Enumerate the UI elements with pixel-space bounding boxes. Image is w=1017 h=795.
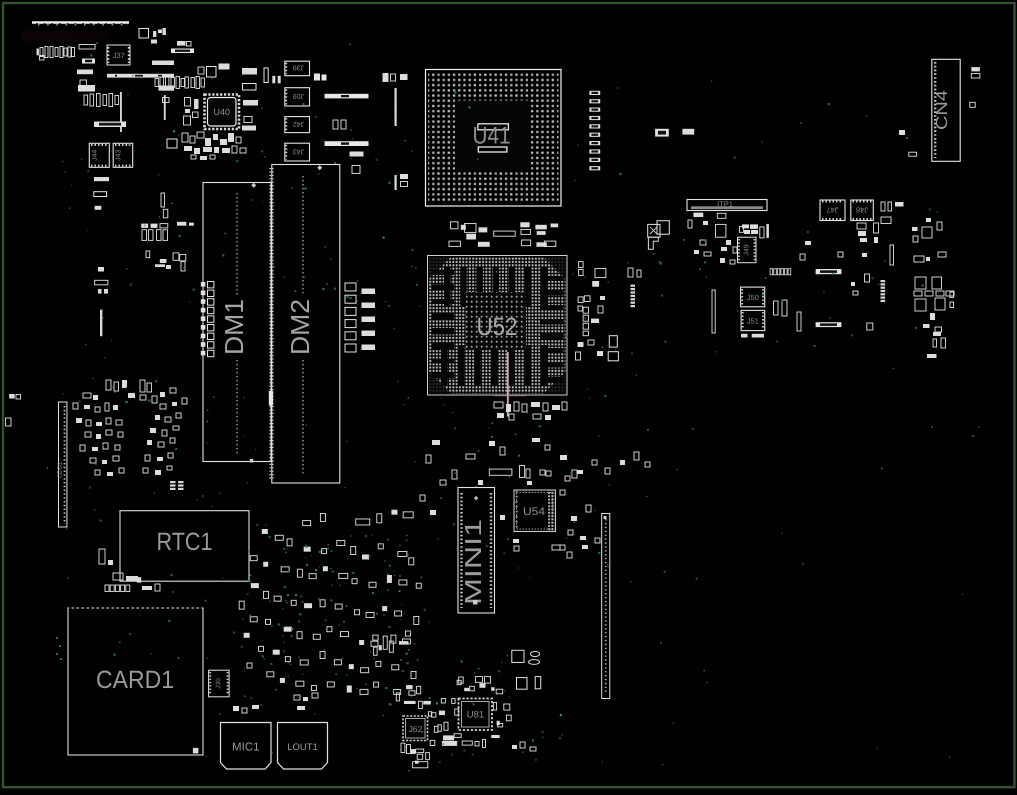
svg-text:U54: U54 (523, 506, 545, 518)
svg-text:J44: J44 (92, 150, 99, 161)
svg-text:U81: U81 (467, 710, 484, 721)
svg-text:J37: J37 (113, 51, 125, 60)
svg-text:J47: J47 (826, 205, 838, 214)
svg-text:U52: U52 (477, 313, 518, 341)
svg-text:DM1: DM1 (219, 299, 249, 355)
svg-text:DM2: DM2 (285, 299, 315, 355)
svg-text:J51: J51 (747, 317, 759, 326)
svg-text:J43: J43 (115, 150, 122, 161)
svg-text:J43: J43 (293, 147, 304, 154)
svg-text:J09: J09 (293, 92, 304, 99)
svg-text:ITP1: ITP1 (717, 200, 733, 209)
svg-text:J50: J50 (747, 293, 759, 302)
svg-text:CARD1: CARD1 (96, 666, 174, 694)
svg-text:U40: U40 (214, 107, 231, 117)
svg-text:RTC1: RTC1 (157, 528, 213, 556)
svg-text:MINI1: MINI1 (460, 519, 486, 605)
svg-text:U41: U41 (473, 123, 511, 150)
svg-text:CDD1: CDD1 (57, 461, 64, 478)
svg-text:J48: J48 (856, 205, 868, 214)
svg-text:MIC1: MIC1 (232, 742, 259, 754)
svg-text:J30: J30 (215, 678, 222, 689)
svg-text:J39: J39 (293, 64, 304, 71)
svg-text:J49: J49 (744, 244, 751, 255)
svg-text:CN4: CN4 (934, 90, 951, 130)
svg-text:J62: J62 (409, 724, 423, 734)
svg-text:J42: J42 (293, 120, 304, 127)
svg-text:LOUT1: LOUT1 (287, 742, 318, 753)
